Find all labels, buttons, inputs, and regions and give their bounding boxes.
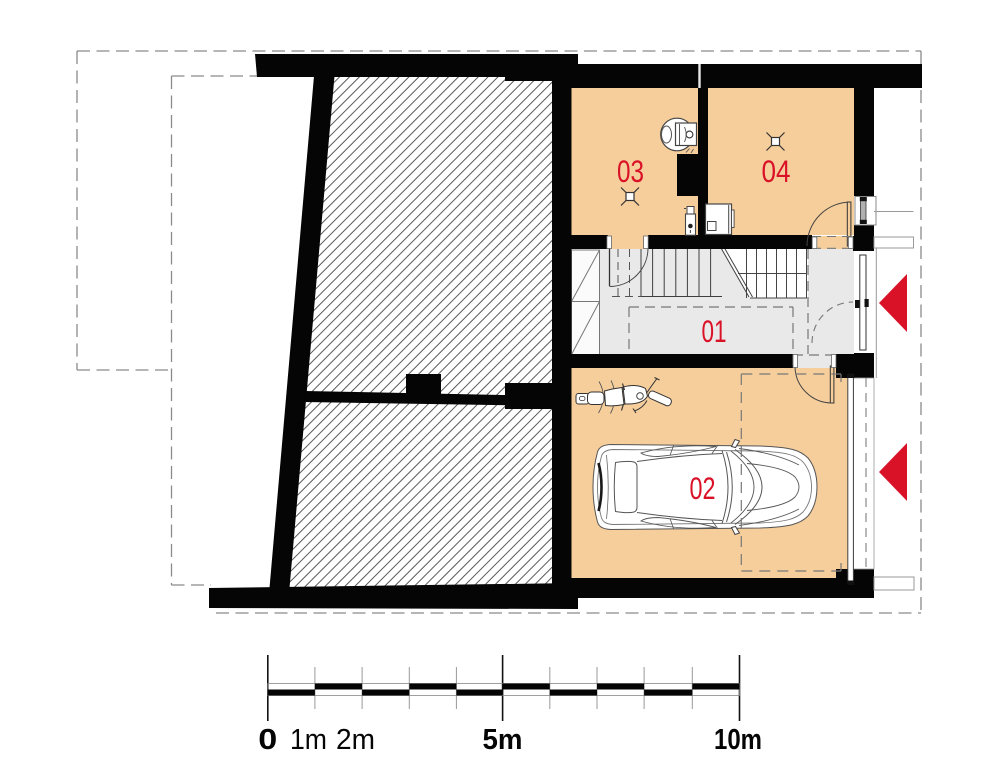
svg-text:01: 01 xyxy=(702,313,727,349)
svg-text:03: 03 xyxy=(617,153,644,189)
svg-text:10m: 10m xyxy=(714,724,762,756)
svg-text:02: 02 xyxy=(690,470,716,506)
svg-text:2m: 2m xyxy=(336,724,375,756)
svg-text:0: 0 xyxy=(258,724,277,756)
svg-text:04: 04 xyxy=(762,153,791,189)
svg-text:1m: 1m xyxy=(290,724,327,756)
svg-text:5m: 5m xyxy=(483,724,523,756)
